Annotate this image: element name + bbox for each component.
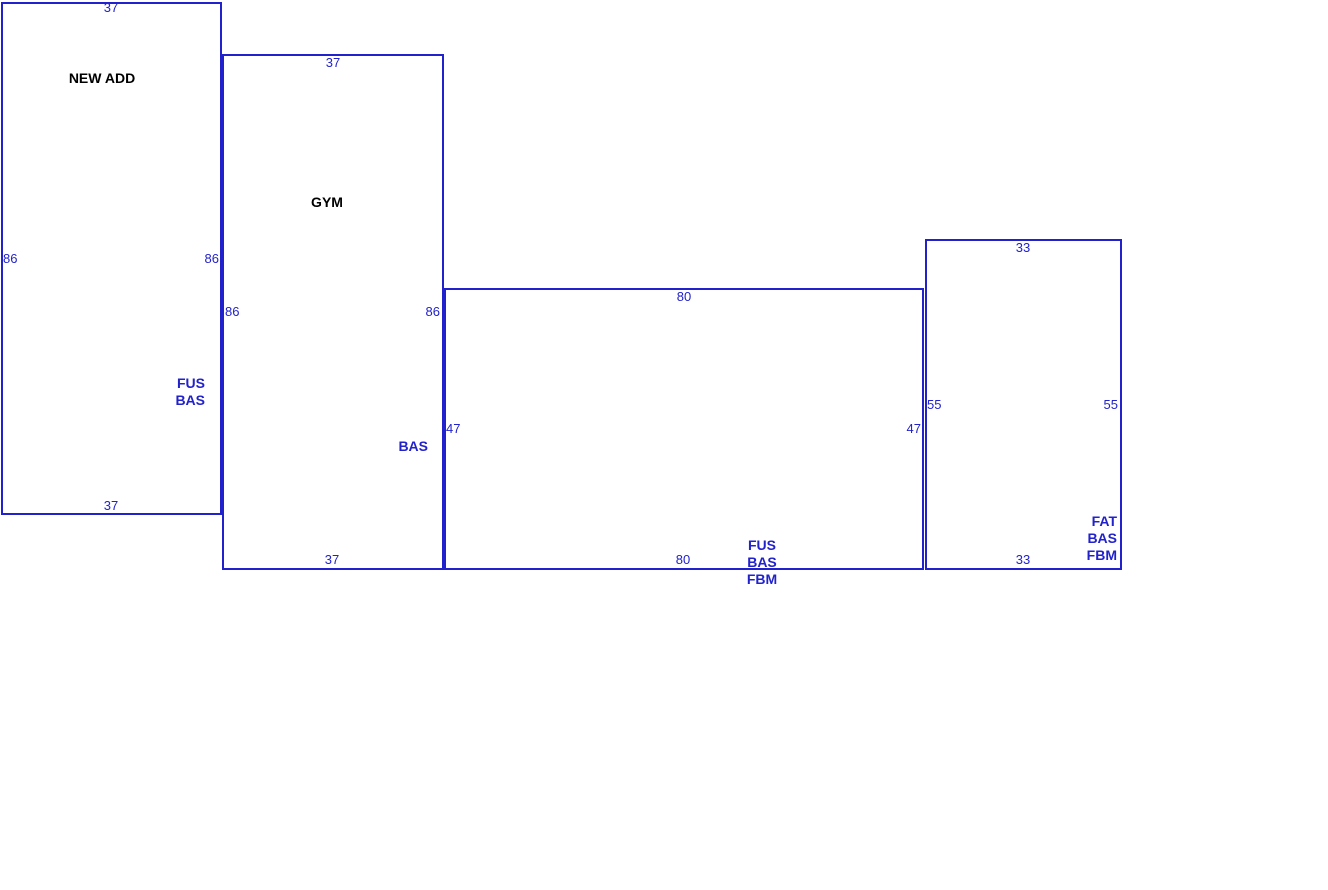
shape-basement-center: 80 80 47 47 FUS BAS FBM	[444, 288, 924, 570]
dim-label-right: 86	[426, 305, 440, 319]
dim-label-left: 47	[446, 422, 460, 436]
dim-label-top: 80	[677, 290, 691, 304]
sketch-canvas: 37 37 86 86 NEW ADD FUS BAS 37 37 86 86 …	[0, 0, 1328, 890]
dim-label-top: 37	[326, 56, 340, 70]
area-type-line: FAT	[1087, 513, 1117, 530]
dim-label-bottom: 33	[1016, 553, 1030, 567]
area-type-label: FAT BAS FBM	[1087, 513, 1117, 564]
area-type-line: FUS	[175, 375, 205, 392]
area-type-line: BAS	[175, 392, 205, 409]
shape-new-add: 37 37 86 86 NEW ADD FUS BAS	[1, 2, 222, 515]
room-name-label: NEW ADD	[69, 70, 135, 86]
dim-label-top: 37	[104, 1, 118, 15]
area-type-line: BAS	[1087, 530, 1117, 547]
area-type-line: BAS	[398, 438, 428, 455]
shape-gym: 37 37 86 86 GYM BAS	[222, 54, 444, 570]
area-type-label: FUS BAS FBM	[747, 537, 777, 588]
dim-label-right: 55	[1104, 398, 1118, 412]
dim-label-right: 47	[907, 422, 921, 436]
area-type-label: FUS BAS	[175, 375, 205, 409]
dim-label-top: 33	[1016, 241, 1030, 255]
room-name-label: GYM	[311, 194, 343, 210]
dim-label-left: 86	[225, 305, 239, 319]
area-type-line: FUS	[747, 537, 777, 554]
dim-label-bottom: 80	[676, 553, 690, 567]
area-type-line: BAS	[747, 554, 777, 571]
dim-label-left: 86	[3, 252, 17, 266]
area-type-line: FBM	[1087, 547, 1117, 564]
dim-label-left: 55	[927, 398, 941, 412]
area-type-label: BAS	[398, 438, 428, 455]
dim-label-bottom: 37	[104, 499, 118, 513]
shape-basement-right: 33 33 55 55 FAT BAS FBM	[925, 239, 1122, 570]
dim-label-bottom: 37	[325, 553, 339, 567]
area-type-line: FBM	[747, 571, 777, 588]
dim-label-right: 86	[205, 252, 219, 266]
